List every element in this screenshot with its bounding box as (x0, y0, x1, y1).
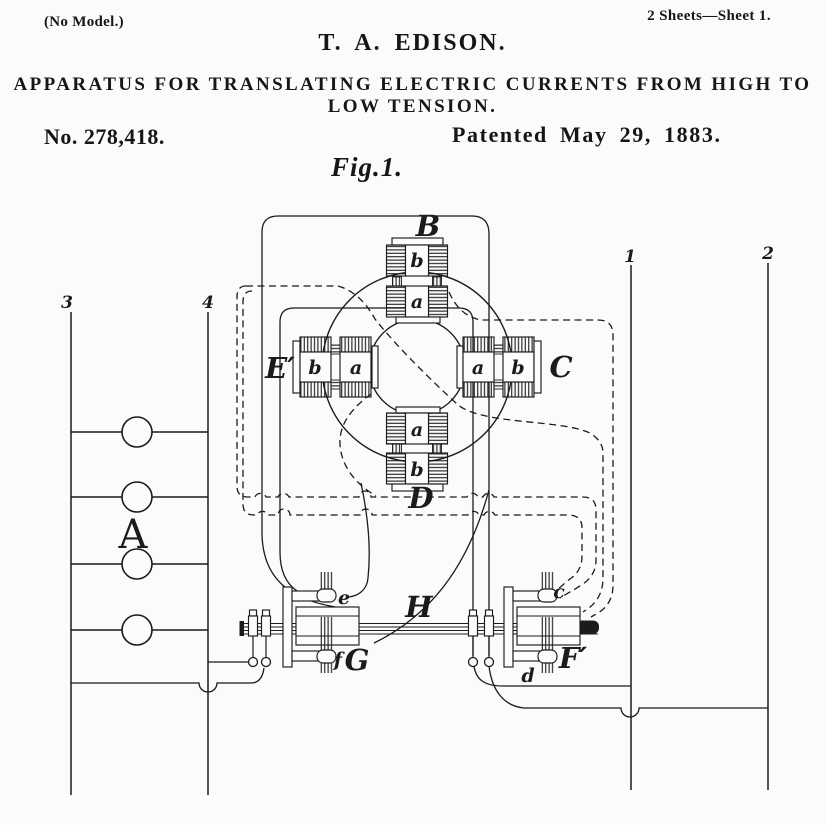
ring-inner (369, 319, 465, 415)
coil-nub (331, 380, 340, 389)
post-cap (470, 610, 477, 616)
coil-block (300, 337, 331, 352)
figure-label-1: 1 (624, 247, 636, 267)
coil-block (340, 337, 371, 352)
figure-label-E′: E′ (264, 351, 295, 385)
figure-label-b: b (410, 459, 423, 481)
figure-label-e: e (338, 587, 350, 609)
coil-block (463, 382, 494, 397)
device-f-plate (504, 587, 513, 667)
coil-plate (457, 346, 463, 388)
lamp-circle (122, 615, 152, 645)
figure-label-3: 3 (61, 293, 73, 313)
device-g-brush-top (319, 572, 334, 589)
device-g-arm-top (292, 591, 320, 601)
device-f-arm-top (513, 591, 541, 601)
figure-label-F′: F′ (558, 641, 588, 675)
lamp-circle (122, 417, 152, 447)
coil-block (429, 245, 448, 276)
coil-nub (433, 277, 442, 286)
figure-label-C: C (549, 350, 572, 384)
post-clamp (469, 616, 478, 636)
figure-label-c: c (553, 581, 565, 603)
device-f-arm-bottom (513, 651, 541, 661)
coil-block (429, 286, 448, 317)
figure-label-2: 2 (761, 244, 774, 264)
figure-label-G: G (345, 643, 370, 677)
coil-nub (393, 277, 402, 286)
coil-plate (396, 407, 440, 413)
coil-nub (433, 444, 442, 453)
line-wires (71, 263, 768, 795)
coil-block (387, 286, 406, 317)
dashed-cross-wire (246, 286, 603, 612)
post-cap (263, 610, 270, 616)
post-clamp (485, 616, 494, 636)
device-g-brush-mid (320, 617, 333, 646)
post-cap (250, 610, 257, 616)
binding-post-circle (262, 658, 271, 667)
coil-block (429, 413, 448, 444)
figure-label-B: B (415, 209, 441, 243)
coil-block (503, 382, 534, 397)
device-f-brush-mid (541, 617, 554, 646)
shaft-left-cap (240, 621, 245, 636)
figure-label-H: H (404, 590, 434, 624)
figure-label-b: b (410, 250, 423, 272)
device-f-knob-bottom (538, 650, 557, 663)
post-clamp (249, 616, 258, 636)
figure-label-b: b (308, 357, 321, 379)
figure-label-b: b (511, 357, 524, 379)
wire-line3-to-post (71, 668, 264, 692)
binding-post-circle (469, 658, 478, 667)
figure-label-A: A (118, 512, 149, 558)
coil-nub (494, 345, 503, 354)
patent-drawing: BCDE′F′GHAbaabbaabefcd3412 (0, 0, 825, 825)
figure-label-4: 4 (202, 293, 214, 313)
coil-block (340, 382, 371, 397)
device-g-knob-top (317, 589, 336, 602)
coil-block (387, 413, 406, 444)
coil-nub (393, 444, 402, 453)
figure-label-d: d (521, 665, 534, 687)
coil-plate (396, 317, 440, 323)
coil-nub (494, 380, 503, 389)
device-g-arm-bottom (292, 651, 320, 661)
device-g-plate (283, 587, 292, 667)
coil-plate (534, 341, 541, 393)
figure-labels: BCDE′F′GHAbaabbaabefcd3412 (61, 209, 774, 687)
binding-post-circle (485, 658, 494, 667)
coil-plate (372, 346, 378, 388)
ring-to-g-wire (349, 483, 369, 597)
coil-block (429, 453, 448, 484)
figure-label-f: f (332, 649, 345, 671)
figure-label-a: a (350, 357, 362, 379)
binding-post-circle (249, 658, 258, 667)
bottom-connections (71, 610, 768, 717)
post-cap (486, 610, 493, 616)
coil-block (503, 337, 534, 352)
figure-label-D: D (407, 481, 433, 515)
coil-block (387, 245, 406, 276)
coil-block (387, 453, 406, 484)
figure-label-a: a (411, 419, 423, 441)
lamp-circle (122, 482, 152, 512)
coil-block (300, 382, 331, 397)
coil-block (463, 337, 494, 352)
post-clamp (262, 616, 271, 636)
figure-label-a: a (472, 357, 484, 379)
figure-label-a: a (411, 291, 423, 313)
coil-nub (331, 345, 340, 354)
induction-coils (293, 238, 541, 491)
dashed-wires (237, 286, 613, 617)
dashed-e-wire (340, 394, 376, 496)
